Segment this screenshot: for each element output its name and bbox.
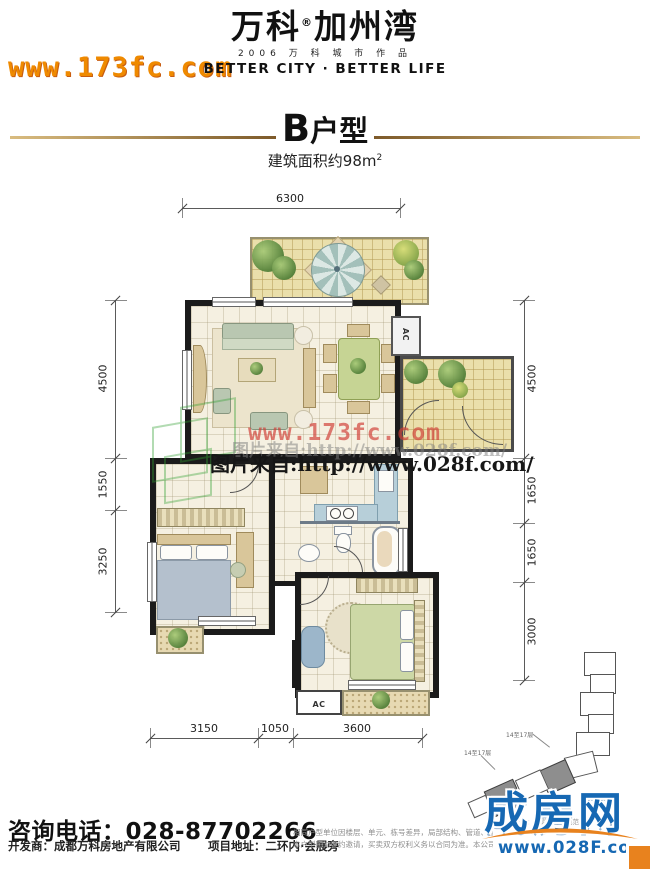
ac-box-bottom: AC [296,690,342,715]
wireframe-cube [164,448,212,504]
chair-icon [323,344,337,363]
keyplan-label-a: 14至17层 [506,730,533,739]
logo-square-icon [626,843,650,869]
window [212,297,256,307]
pillow-icon [400,642,414,672]
area-sup: 2 [376,153,382,163]
keyplan: 14至17层 14至17层 说明：阴影内为着色范围 [468,640,650,790]
registered-mark-icon: ® [301,16,314,29]
plant-icon [168,628,188,648]
wardrobe-icon [157,508,245,527]
leader-line [532,733,550,747]
brand-slogan: BETTER CITY · BETTER LIFE [195,61,455,77]
bed-headboard-icon [157,534,231,545]
dim-top-label: 6300 [255,192,325,205]
brand-name: 万科 [231,7,301,46]
chair-icon [381,374,395,393]
brand-year-line: 2006 万 科 城 市 作 品 [195,46,455,59]
disclaimer-line2: 本户型图为要约邀请，买卖双方权利义务以合同为准。本公司 [293,839,493,850]
burner-icon [343,508,354,519]
brand-project: 加州湾 [314,7,419,46]
unit-suffix: 户型 [310,114,368,148]
keyplan-label-b: 14至17层 [464,748,491,757]
ac-niche-top: AC [391,316,421,356]
desk-icon [236,532,254,588]
leader-line [481,755,496,770]
flyer-page: { "colors": { "accent_gold": "#a97c3b", … [0,0,650,867]
headboard-icon [414,600,425,682]
plant-icon [404,360,428,384]
shelf-icon [303,348,316,408]
dim-right-label-0: 4500 [526,359,539,399]
dim-right-label-2: 1650 [526,533,539,573]
chair-icon [347,401,370,414]
plant-icon [272,256,296,280]
ac-label-top: AC [401,328,410,341]
sofa-seat-icon [222,338,294,350]
dim-top-line [182,208,400,209]
dim-bottom-label-2: 3600 [327,722,387,735]
side-table-icon [294,326,313,345]
brand-name-line: 万科®加州湾 [195,10,455,43]
area-subtitle: 建筑面积约98m2 [0,150,650,171]
window [348,680,416,690]
watermark-black: 图片来自:http://www.028f.com/ [210,448,534,477]
dim-left-label-2: 3250 [97,542,110,582]
dim-left-label-0: 4500 [97,359,110,399]
pillow-icon [400,610,414,640]
developer-text: 开发商：成都万科房地产有限公司 [8,838,181,854]
pillow-icon [196,545,228,560]
plant-icon [372,691,390,709]
chair-icon [323,374,337,393]
bath-partition-wall [300,521,400,524]
plant-icon [452,382,468,398]
floor-plan: AC AC [0,190,650,790]
bathtub-inner [377,531,392,567]
dim-bottom-label-0: 3150 [174,722,234,735]
keyplan-building [580,692,614,716]
pillow-icon [160,545,192,560]
plant-icon [404,260,424,280]
unit-letter: B [282,107,310,150]
ac-label-bottom: AC [312,700,325,709]
brand-logo: 万科®加州湾 2006 万 科 城 市 作 品 BETTER CITY · BE… [195,10,455,77]
chair-icon [347,324,370,337]
area-text: 建筑面积约98m [268,152,377,170]
plant-icon [250,362,263,375]
burner-icon [330,508,341,519]
dim-bottom-label-1: 1050 [250,722,300,735]
chengfang-logo: 成房网 www.028F.com [476,790,650,867]
dim-left-label-1: 1550 [97,465,110,505]
wardrobe-icon [356,578,418,593]
bed-icon [157,560,231,620]
unit-title: B户型 [0,107,650,150]
window [147,542,157,602]
keyplan-building [584,652,616,676]
window [263,297,353,307]
dim-bottom-line [150,738,422,739]
window [398,528,408,572]
disclaimer-line1: 相同户型单位因楼层、单元、栋号差异，局部结构、管道、窗 [293,827,493,838]
basin-icon [298,544,320,562]
keyplan-building [590,674,616,694]
umbrella-center-icon [334,266,340,272]
plant-icon [350,358,366,374]
window [198,616,256,626]
chaise-icon [301,626,325,668]
keyplan-building [588,714,614,734]
chair-icon [230,562,246,578]
